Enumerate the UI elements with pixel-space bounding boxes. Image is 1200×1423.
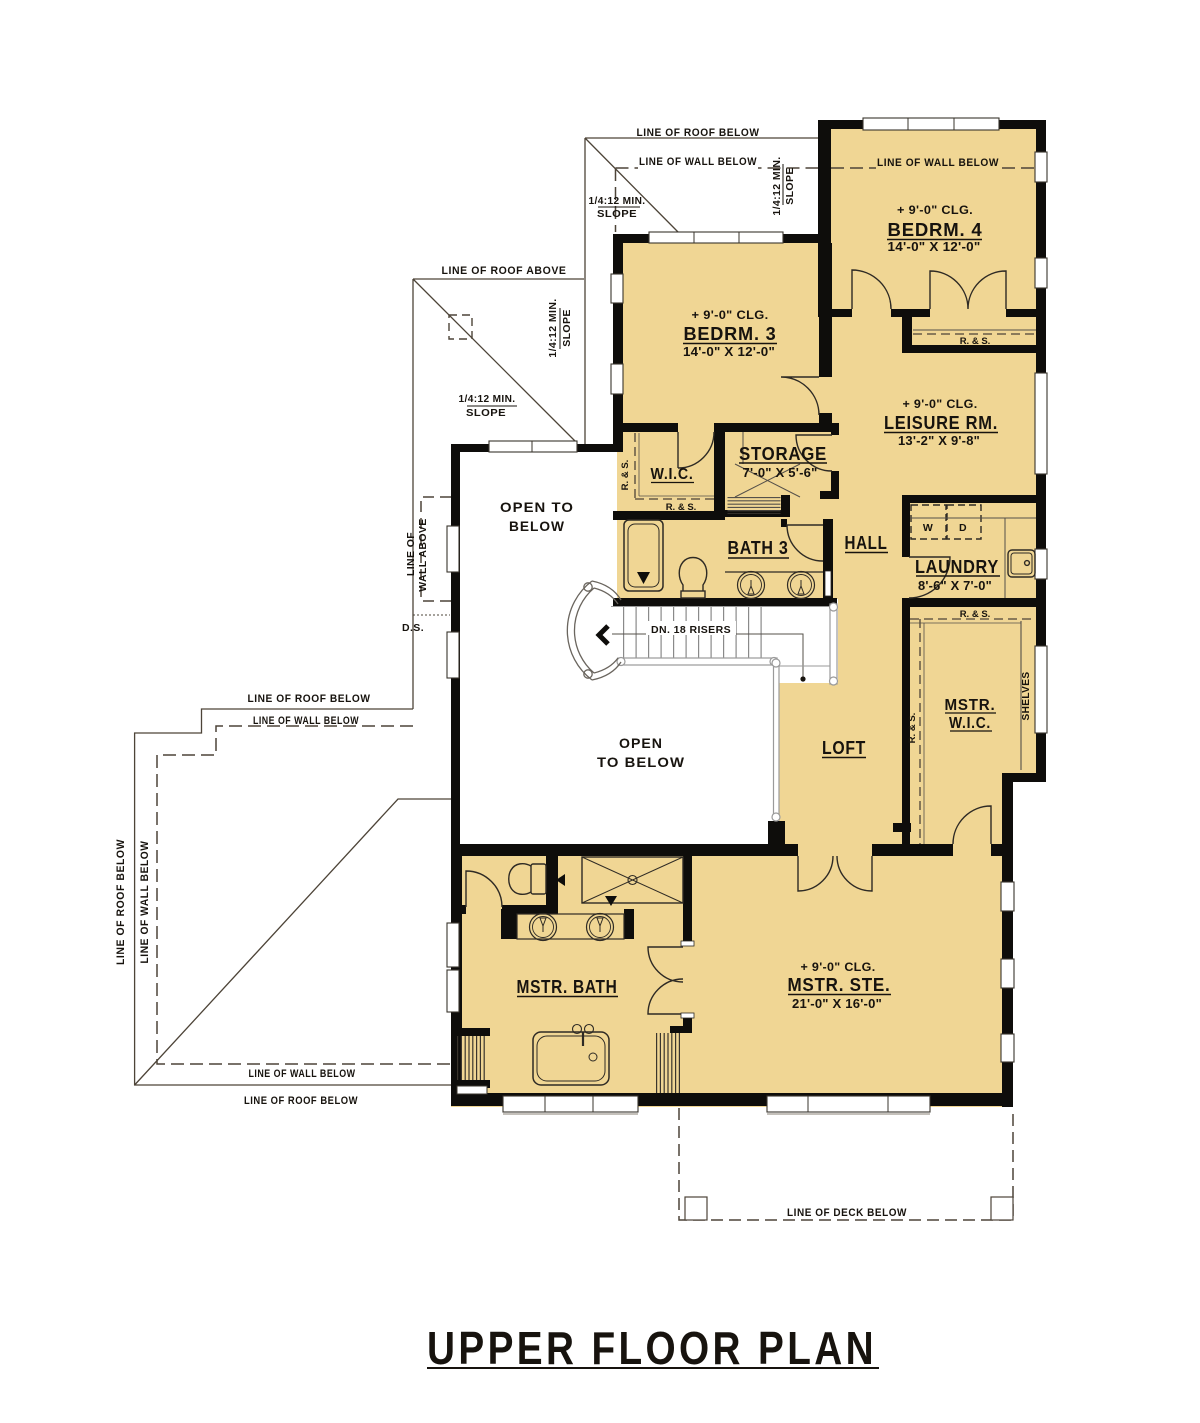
svg-text:LAUNDRY: LAUNDRY	[915, 556, 999, 577]
svg-text:LINE OF WALL BELOW: LINE OF WALL BELOW	[877, 157, 999, 169]
svg-text:R. & S.: R. & S.	[666, 502, 697, 513]
svg-text:LINE OF ROOF BELOW: LINE OF ROOF BELOW	[244, 1095, 358, 1107]
svg-text:+ 9'-0" CLG.: + 9'-0" CLG.	[897, 203, 973, 217]
svg-text:1/4:12 MIN.: 1/4:12 MIN.	[589, 195, 646, 207]
svg-text:W.I.C.: W.I.C.	[651, 466, 694, 483]
svg-text:LINE OF WALL BELOW: LINE OF WALL BELOW	[639, 156, 757, 168]
svg-text:SLOPE: SLOPE	[597, 208, 637, 220]
svg-text:1/4:12 MIN.: 1/4:12 MIN.	[459, 393, 516, 405]
svg-text:1/4:12 MIN.: 1/4:12 MIN.	[771, 156, 783, 215]
svg-text:21'-0" X 16'-0": 21'-0" X 16'-0"	[792, 997, 882, 1011]
svg-text:BEDRM. 4: BEDRM. 4	[888, 219, 983, 240]
svg-text:SLOPE: SLOPE	[466, 407, 506, 419]
svg-text:LINE OF WALL BELOW: LINE OF WALL BELOW	[253, 715, 359, 727]
svg-text:TO BELOW: TO BELOW	[597, 754, 685, 770]
svg-text:14'-0" X 12'-0": 14'-0" X 12'-0"	[683, 345, 775, 359]
svg-text:LEISURE RM.: LEISURE RM.	[884, 412, 998, 433]
svg-text:R. & S.: R. & S.	[960, 609, 991, 620]
svg-text:WALL ABOVE: WALL ABOVE	[417, 518, 429, 591]
svg-text:W.I.C.: W.I.C.	[949, 715, 991, 732]
svg-text:MSTR. STE.: MSTR. STE.	[788, 974, 891, 995]
svg-text:1/4:12 MIN.: 1/4:12 MIN.	[547, 298, 559, 357]
svg-text:OPEN: OPEN	[619, 735, 663, 751]
svg-text:OPEN TO: OPEN TO	[500, 499, 574, 515]
svg-text:HALL: HALL	[845, 532, 888, 553]
svg-text:LINE OF ROOF ABOVE: LINE OF ROOF ABOVE	[442, 265, 567, 277]
svg-text:LINE OF WALL BELOW: LINE OF WALL BELOW	[139, 840, 151, 963]
svg-text:MSTR.: MSTR.	[945, 697, 996, 714]
svg-text:LINE OF ROOF BELOW: LINE OF ROOF BELOW	[115, 839, 127, 965]
svg-text:MSTR. BATH: MSTR. BATH	[517, 976, 618, 997]
svg-text:W: W	[923, 522, 933, 534]
svg-text:BEDRM. 3: BEDRM. 3	[684, 323, 777, 344]
svg-text:8'-6" X 7'-0": 8'-6" X 7'-0"	[918, 579, 992, 593]
svg-text:LINE OF: LINE OF	[405, 532, 417, 576]
svg-text:UPPER FLOOR PLAN: UPPER FLOOR PLAN	[427, 1322, 877, 1374]
svg-text:LINE OF WALL BELOW: LINE OF WALL BELOW	[249, 1068, 356, 1080]
svg-text:7'-0" X 5'-6": 7'-0" X 5'-6"	[743, 466, 818, 480]
svg-text:+ 9'-0" CLG.: + 9'-0" CLG.	[692, 308, 769, 322]
svg-text:LINE OF ROOF BELOW: LINE OF ROOF BELOW	[637, 127, 760, 139]
svg-text:LOFT: LOFT	[822, 737, 866, 758]
svg-text:LINE OF DECK BELOW: LINE OF DECK BELOW	[787, 1207, 907, 1219]
svg-text:BELOW: BELOW	[509, 518, 565, 534]
svg-text:D.S.: D.S.	[402, 622, 424, 634]
svg-text:R. & S.: R. & S.	[960, 336, 991, 347]
svg-text:+ 9'-0" CLG.: + 9'-0" CLG.	[801, 960, 876, 974]
svg-text:13'-2" X 9'-8": 13'-2" X 9'-8"	[898, 434, 980, 448]
svg-text:SLOPE: SLOPE	[784, 167, 796, 205]
svg-text:+ 9'-0" CLG.: + 9'-0" CLG.	[903, 397, 978, 411]
svg-text:LINE OF ROOF BELOW: LINE OF ROOF BELOW	[248, 693, 371, 705]
svg-text:R. & S.: R. & S.	[620, 460, 631, 491]
svg-text:SLOPE: SLOPE	[561, 309, 573, 347]
svg-text:R. & S.: R. & S.	[907, 713, 918, 744]
svg-text:D: D	[959, 522, 967, 534]
svg-text:SHELVES: SHELVES	[1020, 672, 1032, 721]
svg-text:DN. 18 RISERS: DN. 18 RISERS	[651, 624, 731, 636]
svg-text:14'-0" X 12'-0": 14'-0" X 12'-0"	[888, 240, 981, 254]
svg-text:BATH 3: BATH 3	[728, 537, 789, 558]
svg-text:STORAGE: STORAGE	[739, 443, 827, 464]
